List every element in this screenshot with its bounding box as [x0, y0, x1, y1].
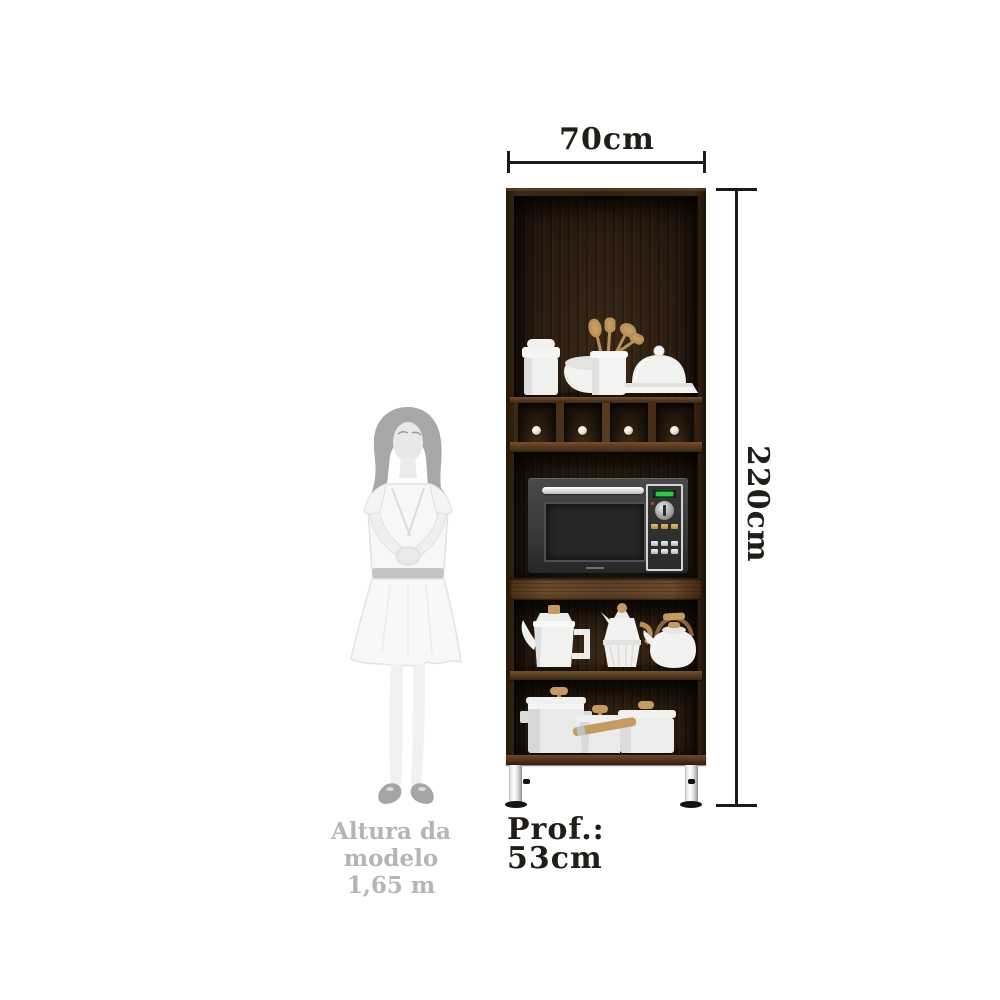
female-model-silhouette — [330, 404, 480, 816]
height-dimension-tick-bottom — [716, 804, 757, 807]
cabinet-foot-right — [680, 801, 702, 808]
microwave-display — [653, 490, 676, 498]
shoe-right — [411, 783, 434, 804]
microwave-brand-mark — [586, 567, 604, 569]
microwave-window — [544, 502, 646, 562]
skirt — [351, 579, 461, 667]
shelf-board — [510, 442, 702, 452]
tea-shelf-items — [514, 600, 698, 671]
product-dimension-diagram: Altura da modelo 1,65 m — [0, 0, 1000, 1000]
width-dimension-label: 70cm — [507, 122, 707, 157]
width-dimension-line — [508, 161, 706, 164]
drawer-front-band — [510, 578, 702, 600]
model-caption-line1: Altura da modelo — [285, 818, 497, 872]
depth-label-prefix: Prof.: — [507, 815, 605, 844]
butter-dish-icon — [620, 346, 698, 393]
height-dimension-line — [735, 189, 738, 807]
cubby-1 — [518, 403, 556, 442]
cabinet-leg-left — [509, 765, 522, 805]
pots-shelf-items — [514, 677, 698, 755]
shoe-left — [378, 783, 401, 804]
neck — [399, 458, 417, 478]
microwave-preset-buttons — [648, 524, 681, 529]
width-dimension-tick-right — [703, 151, 706, 173]
microwave-dial-knob — [655, 501, 674, 520]
hands — [396, 547, 420, 565]
depth-label-value: 53cm — [507, 844, 605, 873]
model-caption-line2: 1,65 m — [285, 872, 497, 899]
kettle-icon — [643, 612, 696, 668]
cabinet-back-foot-left — [523, 779, 530, 784]
cubby-knob-icon — [532, 426, 541, 435]
height-dimension-tick-top — [716, 188, 757, 191]
cubby-knob-icon — [578, 426, 587, 435]
width-dimension-tick-left — [507, 151, 510, 173]
top-open-shelf — [514, 196, 698, 397]
cubby-row — [514, 403, 698, 442]
belt — [372, 568, 444, 579]
cubby-knob-icon — [670, 426, 679, 435]
cubby-2 — [564, 403, 602, 442]
cabinet-back-foot-right — [688, 779, 695, 784]
microwave-handle — [542, 487, 644, 494]
top-shelf-items — [514, 313, 698, 397]
cabinet-base-board — [506, 755, 706, 765]
pots-shelf — [514, 680, 698, 755]
cabinet-foot-left — [505, 801, 527, 808]
model-caption: Altura da modelo 1,65 m — [285, 818, 497, 899]
leg-left — [389, 664, 403, 784]
coffee-pot-icon — [522, 605, 587, 667]
microwave-keypad — [648, 541, 681, 554]
microwave-indicator-light — [651, 502, 654, 505]
moka-pot-icon — [601, 603, 650, 667]
face — [393, 422, 423, 462]
cubby-knob-icon — [624, 426, 633, 435]
kitchen-cabinet — [506, 188, 706, 765]
cubby-3 — [610, 403, 648, 442]
microwave-oven — [528, 478, 688, 573]
height-dimension-label: 220cm — [741, 445, 773, 545]
ceramic-canister-icon — [522, 339, 560, 395]
cabinet-leg-right — [685, 765, 698, 805]
cubby-4 — [656, 403, 694, 442]
microwave-niche — [514, 452, 698, 578]
microwave-control-panel — [646, 484, 683, 571]
tea-shelf — [514, 600, 698, 671]
leg-right — [411, 664, 425, 784]
depth-dimension-label: Prof.: 53cm — [507, 815, 605, 873]
